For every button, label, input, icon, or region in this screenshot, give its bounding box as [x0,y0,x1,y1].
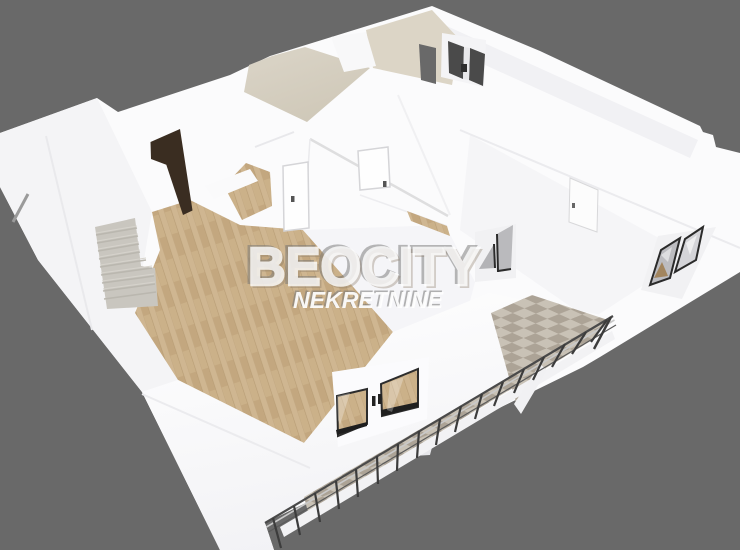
svg-text:NEKRETNINE: NEKRETNINE [293,287,444,313]
